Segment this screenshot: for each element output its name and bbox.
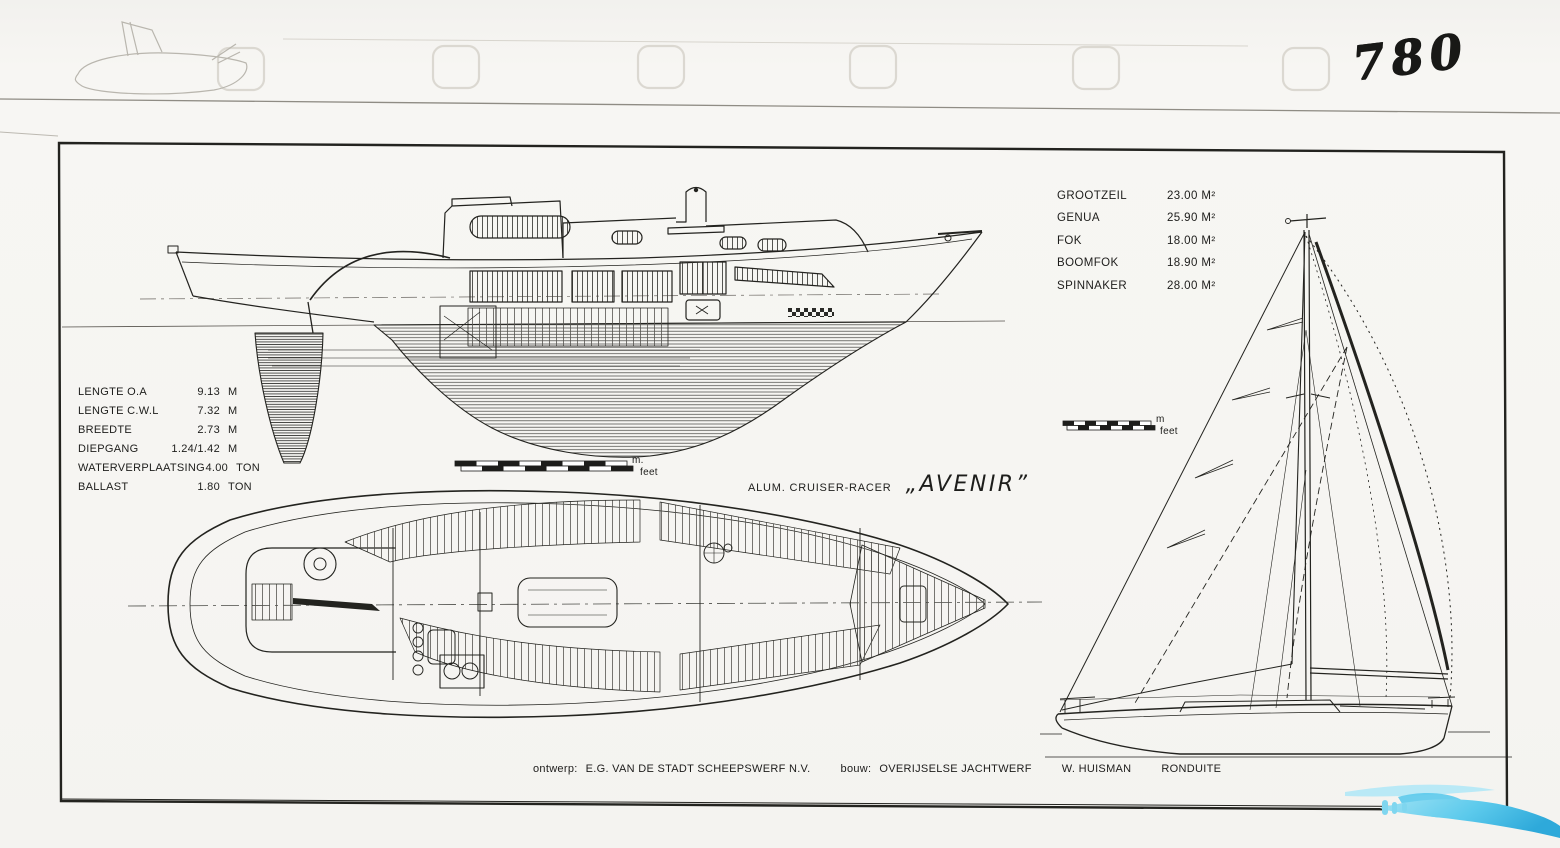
table-row: BREEDTE 2.73 M bbox=[78, 424, 260, 443]
boat-doodle-sketch bbox=[75, 22, 246, 94]
table-row: LENGTE C.W.L 7.32 M bbox=[78, 405, 260, 424]
dimension-label: WATERVERPLAATSING bbox=[78, 462, 205, 474]
scale-metric-label: m. bbox=[632, 455, 644, 466]
table-row: SPINNAKER 28.00 M² bbox=[1057, 280, 1267, 302]
dimension-value: 1.80 bbox=[168, 481, 220, 493]
dimension-unit: M bbox=[228, 424, 260, 436]
sail-area-value: 23.00 M² bbox=[1167, 190, 1216, 202]
credits-line: ontwerp: E.G. VAN DE STADT SCHEEPSWERF N… bbox=[533, 763, 1221, 775]
dimension-unit: TON bbox=[236, 462, 260, 474]
sail-area-value: 28.00 M² bbox=[1167, 280, 1216, 292]
dimension-value: 9.13 bbox=[168, 386, 220, 398]
builder-yard: OVERIJSELSE JACHTWERF bbox=[879, 763, 1031, 775]
sail-areas-table: GROOTZEIL 23.00 M² GENUA 25.90 M² FOK 18… bbox=[1057, 190, 1267, 302]
watermark-swoosh bbox=[1345, 785, 1560, 838]
table-row: BOOMFOK 18.90 M² bbox=[1057, 257, 1267, 279]
dimension-label: BALLAST bbox=[78, 481, 168, 493]
tiller-plan bbox=[293, 598, 380, 611]
dimension-value: 1.24/1.42 bbox=[168, 443, 220, 455]
dimension-unit: M bbox=[228, 386, 260, 398]
punch-holes bbox=[218, 46, 1329, 90]
boat-name: „AVENIR” bbox=[906, 472, 1030, 497]
table-row: FOK 18.00 M² bbox=[1057, 235, 1267, 257]
build-label: bouw: bbox=[841, 763, 872, 775]
sail-area-value: 18.00 M² bbox=[1167, 235, 1216, 247]
dimensions-table: LENGTE O.A 9.13 M LENGTE C.W.L 7.32 M BR… bbox=[78, 386, 260, 500]
dimension-unit: M bbox=[228, 405, 260, 417]
scan-artifacts bbox=[0, 22, 1560, 136]
dimension-label: LENGTE C.W.L bbox=[78, 405, 168, 417]
sail-label: BOOMFOK bbox=[1057, 257, 1167, 269]
rudder bbox=[255, 333, 323, 463]
table-row: DIEPGANG 1.24/1.42 M bbox=[78, 443, 260, 462]
table-row: GROOTZEIL 23.00 M² bbox=[1057, 190, 1267, 212]
dimension-label: DIEPGANG bbox=[78, 443, 168, 455]
sail-label: GENUA bbox=[1057, 212, 1167, 224]
dimension-value: 2.73 bbox=[168, 424, 220, 436]
sail-label: GROOTZEIL bbox=[1057, 190, 1167, 202]
scale-metric-label: m bbox=[1156, 414, 1165, 425]
builder-name: W. HUISMAN bbox=[1062, 763, 1132, 775]
build-credit: bouw: OVERIJSELSE JACHTWERF bbox=[841, 763, 1032, 775]
dimension-value: 7.32 bbox=[168, 405, 220, 417]
design-label: ontwerp: bbox=[533, 763, 578, 775]
scale-imperial-label: feet bbox=[1160, 426, 1178, 437]
scale-bar-profile bbox=[455, 461, 633, 471]
drawing-title: ALUM. CRUISER-RACER „AVENIR” bbox=[748, 472, 1030, 497]
dimension-unit: M bbox=[228, 443, 260, 455]
table-row: WATERVERPLAATSING 4.00 TON bbox=[78, 462, 260, 481]
dimension-label: BREEDTE bbox=[78, 424, 168, 436]
scanned-yacht-drawing-sheet: 780 LENGTE O.A 9.13 M LENGTE C.W.L 7.32 … bbox=[0, 0, 1560, 848]
sail-label: FOK bbox=[1057, 235, 1167, 247]
dimension-label: LENGTE O.A bbox=[78, 386, 168, 398]
table-row: BALLAST 1.80 TON bbox=[78, 481, 260, 500]
table-row: GENUA 25.90 M² bbox=[1057, 212, 1267, 234]
designer-name: E.G. VAN DE STADT SCHEEPSWERF N.V. bbox=[586, 763, 811, 775]
builder-location: RONDUITE bbox=[1161, 763, 1221, 775]
dimension-unit: TON bbox=[228, 481, 260, 493]
scale-bar-sail bbox=[1063, 421, 1155, 430]
dimension-value: 4.00 bbox=[205, 462, 228, 474]
sail-area-value: 25.90 M² bbox=[1167, 212, 1216, 224]
deck-plan-drawing bbox=[128, 491, 1042, 718]
boat-type-label: ALUM. CRUISER-RACER bbox=[748, 482, 892, 494]
scale-imperial-label: feet bbox=[640, 467, 658, 478]
design-credit: ontwerp: E.G. VAN DE STADT SCHEEPSWERF N… bbox=[533, 763, 811, 775]
table-row: LENGTE O.A 9.13 M bbox=[78, 386, 260, 405]
sail-area-value: 18.90 M² bbox=[1167, 257, 1216, 269]
sail-label: SPINNAKER bbox=[1057, 280, 1167, 292]
